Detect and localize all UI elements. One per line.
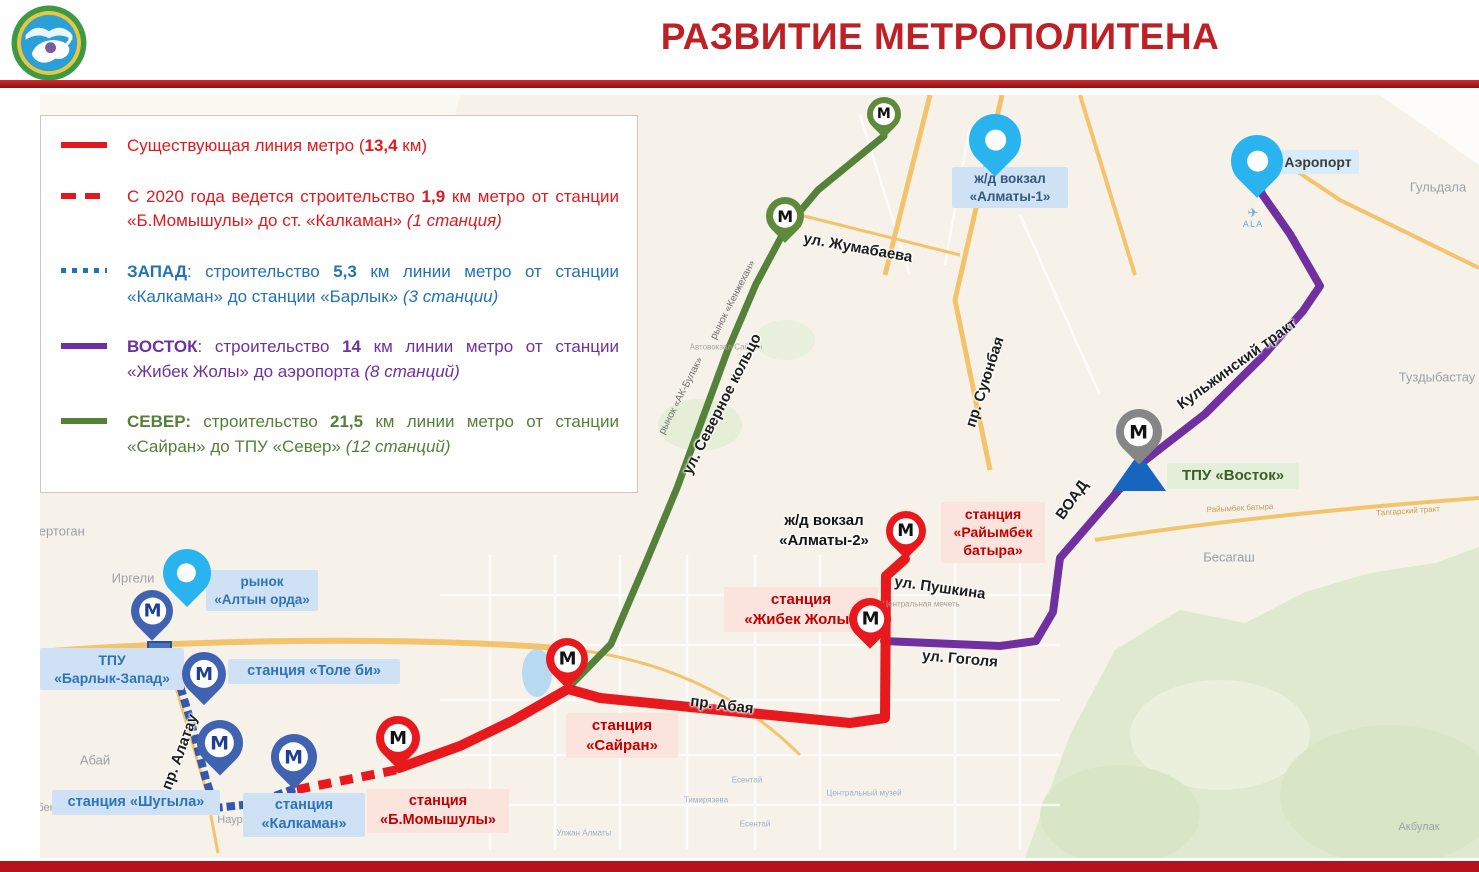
- label-line: станция: [947, 505, 1039, 523]
- metro-m-icon: М: [139, 598, 166, 625]
- legend-run: ВОСТОК: [127, 337, 198, 356]
- pin-hole: [985, 130, 1006, 151]
- airport-code: ALA: [1236, 220, 1270, 230]
- footer-bar: [0, 861, 1479, 872]
- legend-item-west: ЗАПАД: строительство 5,3 км линии метро …: [55, 260, 619, 309]
- legend-item-text: ЗАПАД: строительство 5,3 км линии метро …: [127, 260, 619, 309]
- label-sairan: станция«Сайран»: [566, 713, 678, 758]
- label-line: ж/д вокзал: [776, 511, 872, 531]
- legend-run: С 2020 года ведется строительство: [127, 187, 422, 206]
- place-label: Туздыбастау: [1399, 370, 1476, 385]
- label-rynok-altyn-orda: рынок«Алтын орда»: [206, 570, 318, 611]
- metro-m-icon: М: [1124, 417, 1153, 446]
- legend-run: Существующая линия метро (: [127, 136, 364, 155]
- place-label: Абай: [80, 753, 110, 768]
- legend-swatch-col: [55, 335, 127, 384]
- label-line: станция: [373, 792, 503, 811]
- label-kalkaman: станция«Калкаман»: [243, 793, 365, 837]
- page-title: РАЗВИТИЕ МЕТРОПОЛИТЕНА: [640, 16, 1240, 58]
- legend-run: СЕВЕР:: [127, 412, 191, 431]
- metro-m-icon: М: [190, 660, 218, 688]
- slide: РАЗВИТИЕ МЕТРОПОЛИТЕНА: [0, 0, 1479, 872]
- legend-run: км): [398, 136, 428, 155]
- label-line: «Алматы-1»: [958, 188, 1062, 206]
- metro-m-icon: М: [205, 728, 234, 757]
- metro-m-icon: М: [554, 646, 581, 673]
- metro-m-icon: М: [279, 742, 308, 771]
- legend-run: (12 станций): [346, 437, 451, 456]
- label-line: «Сайран»: [572, 736, 672, 756]
- legend-run: 21,5: [330, 412, 363, 431]
- legend-item-north: СЕВЕР: строительство 21,5 км линии метро…: [55, 410, 619, 459]
- city-map: ✈ ALA Существующая линия метро (13,4 км)…: [40, 95, 1479, 858]
- place-label: Иргели: [112, 571, 155, 586]
- pin-hole: [177, 563, 196, 582]
- label-line: рынок: [212, 573, 312, 591]
- label-line: станция «Толе би»: [234, 662, 394, 681]
- legend-swatch-solid: [61, 142, 107, 148]
- map-small-label: Есентай: [732, 776, 763, 785]
- label-line: «Алтын орда»: [212, 591, 312, 609]
- legend-run: 14: [342, 337, 361, 356]
- east-line: [884, 179, 1320, 646]
- legend-item-existing: Существующая линия метро (13,4 км): [55, 134, 619, 159]
- legend-swatch-dashed: [61, 193, 107, 199]
- legend-swatch-dotted: [61, 268, 107, 273]
- label-line: станция «Шугыла»: [58, 793, 214, 812]
- metro-m-icon: М: [873, 103, 895, 125]
- metro-m-icon: М: [857, 606, 884, 633]
- label-tpu-barlyk-zapad: ТПУ«Барлык-Запад»: [40, 648, 184, 690]
- place-label: Акбулак: [1398, 821, 1439, 833]
- label-b-momyshuly: станция«Б.Момышулы»: [367, 789, 509, 833]
- label-shugyla: станция «Шугыла»: [52, 790, 220, 815]
- legend-run: : строительство: [198, 337, 343, 356]
- almaty-emblem-logo: [10, 4, 88, 82]
- legend-run: 1,9: [422, 187, 446, 206]
- metro-m-icon: М: [893, 518, 919, 544]
- label-railway-almaty2: ж/д вокзал«Алматы-2»: [770, 508, 878, 553]
- airport-icon: ✈ ALA: [1236, 207, 1270, 230]
- place-label: Гульдала: [1410, 180, 1466, 195]
- legend: Существующая линия метро (13,4 км)С 2020…: [40, 115, 638, 493]
- label-railway-almaty1: ж/д вокзал«Алматы-1»: [952, 167, 1068, 208]
- label-line: ж/д вокзал: [958, 170, 1062, 188]
- legend-swatch-col: [55, 134, 127, 159]
- legend-item-text: ВОСТОК: строительство 14 км линии метро …: [127, 335, 619, 384]
- label-line: станция: [249, 796, 359, 815]
- label-line: ТПУ: [46, 651, 178, 669]
- map-small-label: Центральная мечеть: [882, 600, 959, 609]
- label-line: «Калкаман»: [249, 815, 359, 834]
- label-line: станция: [572, 716, 672, 736]
- legend-run: : строительство: [187, 262, 333, 281]
- map-small-label: Улжан Алматы: [557, 829, 612, 838]
- legend-item-text: Существующая линия метро (13,4 км): [127, 134, 619, 159]
- label-raiymbek-batyra: станция«Райымбекбатыра»: [941, 502, 1045, 563]
- place-label: Кертоган: [40, 524, 85, 539]
- metro-m-icon: М: [384, 724, 412, 752]
- legend-item-text: СЕВЕР: строительство 21,5 км линии метро…: [127, 410, 619, 459]
- legend-swatch-col: [55, 260, 127, 309]
- legend-swatch-col: [55, 185, 127, 234]
- label-line: батыра»: [947, 541, 1039, 559]
- legend-swatch-col: [55, 410, 127, 459]
- legend-run: 5,3: [333, 262, 357, 281]
- legend-item-construction-2020: С 2020 года ведется строительство 1,9 км…: [55, 185, 619, 234]
- label-line: «Алматы-2»: [776, 531, 872, 551]
- legend-run: строительство: [191, 412, 330, 431]
- pin-hole: [1247, 151, 1268, 172]
- legend-swatch-solid: [61, 418, 107, 424]
- label-line: «Барлык-Запад»: [46, 669, 178, 687]
- header-rule: [0, 80, 1479, 88]
- legend-run: (3 станции): [403, 287, 498, 306]
- map-small-label: Есентай: [740, 820, 771, 829]
- metro-m-icon: М: [773, 204, 797, 228]
- map-small-label: Тимирязева: [684, 796, 728, 805]
- plane-icon: ✈: [1236, 207, 1270, 220]
- label-line: ТПУ «Восток»: [1173, 466, 1293, 486]
- legend-run: (8 станций): [364, 362, 459, 381]
- label-line: Аэропорт: [1283, 153, 1353, 171]
- legend-run: (1 станция): [407, 211, 502, 230]
- label-tole-bi: станция «Толе би»: [228, 659, 400, 684]
- legend-swatch-solid: [61, 343, 107, 349]
- label-tpu-vostok: ТПУ «Восток»: [1167, 463, 1299, 489]
- label-line: «Б.Момышулы»: [373, 811, 503, 830]
- place-label: Наур: [217, 814, 242, 826]
- label-line: «Райымбек: [947, 523, 1039, 541]
- legend-item-east: ВОСТОК: строительство 14 км линии метро …: [55, 335, 619, 384]
- place-label: Бесагаш: [1203, 550, 1255, 565]
- map-small-label: Центральный музей: [826, 789, 901, 798]
- label-line: станция: [730, 590, 872, 610]
- legend-run: 13,4: [364, 136, 397, 155]
- legend-run: ЗАПАД: [127, 262, 187, 281]
- legend-item-text: С 2020 года ведется строительство 1,9 км…: [127, 185, 619, 234]
- label-airport: Аэропорт: [1277, 150, 1359, 174]
